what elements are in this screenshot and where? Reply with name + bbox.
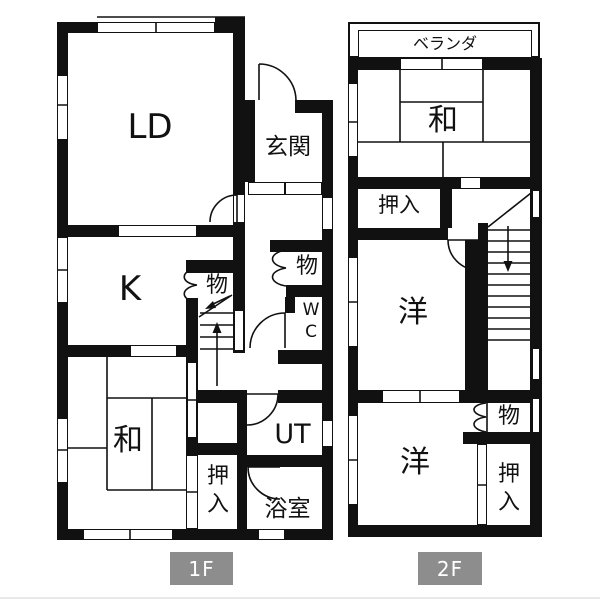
stair-treads-2f <box>488 230 530 340</box>
room-label-washitsu-2f: 和 <box>418 98 468 142</box>
room-label-western-1: 洋 <box>388 290 438 334</box>
room-label-storage-2f: 物 <box>490 402 528 432</box>
room-label-oshiire-1f: 押入 <box>205 455 231 527</box>
door-wc <box>250 313 285 348</box>
room-label-storage-b: 物 <box>288 252 326 282</box>
room-label-bathroom: 浴室 <box>250 495 325 525</box>
bifold-door-storage-b <box>273 250 287 286</box>
room-label-veranda: ベランダ <box>395 33 495 55</box>
room-label-western-2: 洋 <box>390 440 440 484</box>
room-label-wc: WC <box>300 296 322 348</box>
room-label-oshiire-upper: 押入 <box>370 192 428 220</box>
bottom-separator <box>0 597 600 599</box>
bifold-door-storage-a <box>184 268 197 302</box>
floorplan-canvas: LD 玄関 K 物 物 WC 和 押入 UT 浴室 ベランダ 和 押入 洋 洋 … <box>0 0 600 600</box>
room-label-genkan: 玄関 <box>248 130 328 166</box>
room-label-storage-a: 物 <box>198 272 236 300</box>
stair-winder-2f <box>488 193 531 227</box>
room-label-ld: LD <box>100 105 200 150</box>
door-genkan <box>259 64 296 100</box>
room-label-oshiire-lower: 押入 <box>496 453 522 525</box>
room-label-washitsu-1f: 和 <box>103 418 153 462</box>
room-label-kitchen: K <box>95 265 165 315</box>
floor-badge-2f: 2F <box>418 552 482 585</box>
stair-down-arrowhead <box>504 261 513 272</box>
stair-winder-arrowhead <box>205 301 216 309</box>
floor-badge-1f: 1F <box>170 552 233 585</box>
door-western1 <box>448 240 478 270</box>
door-ld <box>210 195 237 222</box>
stair-up-arrowhead <box>213 322 222 333</box>
bifold-door-storage-2f <box>474 403 487 432</box>
room-label-utility: UT <box>265 418 320 452</box>
